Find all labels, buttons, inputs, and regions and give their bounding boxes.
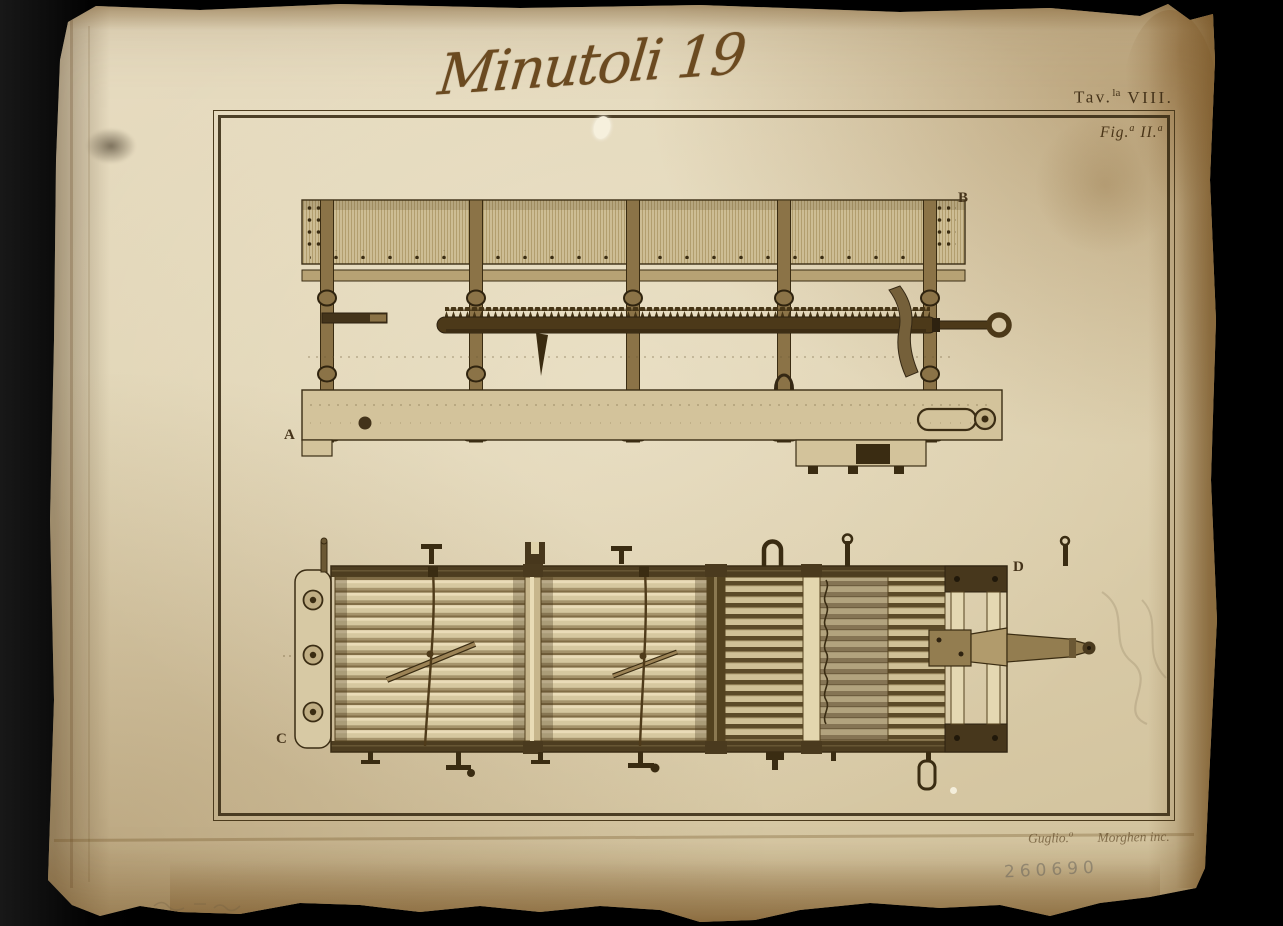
fig-numeral: II. <box>1140 124 1157 141</box>
rung-compartment-1 <box>725 577 803 741</box>
pole-compartment-1 <box>335 572 525 746</box>
tav-prefix: Tav. <box>1074 88 1112 107</box>
signature-name-1: Guglio. <box>1028 830 1069 846</box>
figure-number-label: Fig.aII.a <box>1100 123 1164 142</box>
part-label-c: C <box>276 731 287 748</box>
divider-2-highlight <box>714 577 717 741</box>
pencil-scribble-bottom <box>150 896 280 916</box>
fold-line-bottom <box>54 833 1194 842</box>
shackle-u <box>764 542 781 567</box>
stain-bottom-edge <box>170 850 1160 922</box>
drawbar <box>929 628 1096 666</box>
pencil-scribble <box>1082 582 1182 742</box>
smudge-left-margin <box>86 128 136 164</box>
part-label-d: D <box>1013 559 1024 576</box>
crease-left-2 <box>88 26 90 882</box>
fig-sup-1: a <box>1129 123 1135 134</box>
bottom-fittings <box>361 752 935 789</box>
signature-sup: o <box>1069 828 1074 838</box>
plan-drawing <box>283 528 1103 794</box>
part-label-b: B <box>958 190 968 207</box>
fig-prefix: Fig. <box>1100 124 1129 141</box>
stain-right-edge <box>1176 8 1218 888</box>
slat-divider <box>803 577 820 741</box>
paper-flaw-dot <box>950 787 957 794</box>
top-fittings <box>421 535 1069 567</box>
divider-1-highlight <box>530 577 534 741</box>
tav-sup: la <box>1112 87 1120 99</box>
part-label-a: A <box>284 427 295 444</box>
plate-number-label: Tav.laVIII. <box>1074 87 1173 108</box>
tav-numeral: VIII. <box>1127 88 1173 107</box>
photo-backdrop: Minutoli 19 Tav.laVIII. Fig.aII.a <box>0 0 1283 926</box>
latch-bracket <box>322 313 387 323</box>
crease-left <box>70 20 73 888</box>
front-end-plate <box>295 538 331 748</box>
engraver-signature: Guglio.oMorghen inc. <box>1028 827 1170 847</box>
lower-beam <box>302 390 1002 474</box>
fig-sup-2: a <box>1158 123 1164 134</box>
shackle-ring <box>919 761 935 789</box>
elevation-drawing <box>296 190 1014 486</box>
spike <box>536 333 548 376</box>
signature-name-2: Morghen inc. <box>1097 828 1169 844</box>
ring-eye <box>989 315 1009 335</box>
rung-compartment-2 <box>820 577 888 741</box>
pole-compartment-2 <box>541 572 707 746</box>
